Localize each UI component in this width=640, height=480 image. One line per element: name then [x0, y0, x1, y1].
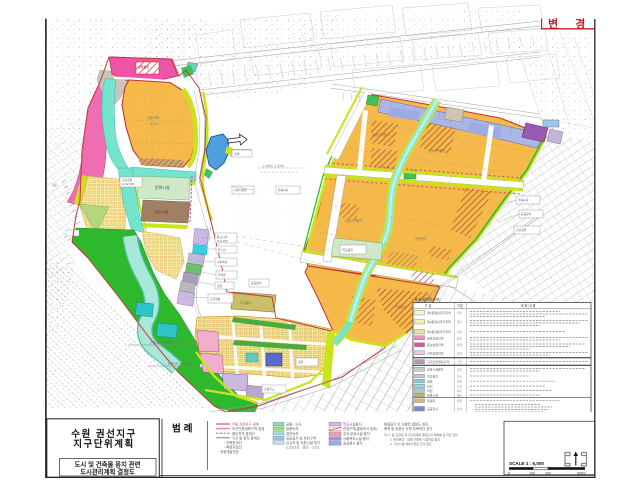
svg-text:주택용지: 주택용지 [415, 236, 427, 241]
svg-text:기호: 기호 [457, 303, 463, 308]
svg-text:주) 1. 본 도면은 지구단위계획 결정도의 범례를 표기: 주) 1. 본 도면은 지구단위계획 결정도의 범례를 표기한 것임 [384, 432, 458, 437]
svg-text:완충녹지: 완충녹지 [278, 188, 289, 192]
svg-text:구 분: 구 분 [424, 303, 431, 308]
svg-text:주요 공공시설 용지: 주요 공공시설 용지 [343, 431, 370, 436]
svg-text:200: 200 [545, 472, 551, 476]
svg-text:일반상업지역: 일반상업지역 [427, 335, 444, 340]
svg-text:SCALE 1 : 6,000: SCALE 1 : 6,000 [509, 461, 544, 466]
svg-text:A=12,000: A=12,000 [122, 182, 134, 186]
svg-text:전용: 전용 [457, 330, 462, 334]
svg-text:업무시설: 업무시설 [155, 209, 168, 214]
svg-text:도시관리계획 결정도: 도시관리계획 결정도 [80, 467, 135, 476]
svg-text:상업용지: 상업용지 [138, 64, 149, 69]
svg-text:축척 및 방위는 도면 우측하단 표기: 축척 및 방위는 도면 우측하단 표기 [384, 426, 432, 431]
svg-text:초등학교: 초등학교 [264, 387, 275, 391]
svg-text:완충녹지: 완충녹지 [286, 426, 298, 431]
svg-text:◦ 벽면지정선: ◦ 벽면지정선 [224, 445, 242, 450]
svg-text:경계: 경계 [234, 152, 240, 156]
svg-text:상업: 상업 [457, 336, 462, 340]
svg-text:공공: 공공 [457, 368, 462, 372]
svg-text:가구 및 획지 경계선: 가구 및 획지 경계선 [232, 435, 260, 440]
svg-text:도로(대로 · 중로 · 소로): 도로(대로 · 중로 · 소로) [286, 445, 319, 450]
svg-text:철도: 철도 [52, 183, 58, 187]
svg-text:용도지역 경계선: 용도지역 경계선 [232, 431, 255, 436]
svg-text:학교용지: 학교용지 [240, 300, 251, 305]
svg-text:문화시설: 문화시설 [155, 184, 170, 190]
svg-text:변경구역(결정조서 참조): 변경구역(결정조서 참조) [343, 426, 377, 431]
svg-text:전용: 전용 [457, 311, 462, 315]
svg-text:수원 권선지구 경계: 수원 권선지구 경계 [232, 422, 259, 427]
svg-text:2. 획지분할ㆍ합병 기준은 시행지침 참조: 2. 획지분할ㆍ합병 기준은 시행지침 참조 [390, 437, 440, 442]
svg-text:학교용지: 학교용지 [342, 247, 353, 252]
svg-text:사회복지: 사회복지 [217, 260, 228, 264]
svg-text:제1종전용주거지역: 제1종전용주거지역 [427, 329, 451, 334]
svg-text:공원: 공원 [217, 284, 223, 288]
svg-text:하천: 하천 [457, 389, 462, 393]
svg-text:제2종일반주거지역: 제2종일반주거지역 [427, 319, 451, 324]
svg-text:도시계획도로 접속부: 도시계획도로 접속부 [262, 164, 285, 168]
svg-text:공동주택용지: 공동주택용지 [428, 148, 446, 153]
svg-text:구역: 구역 [457, 360, 462, 364]
svg-text:범례: 범례 [172, 423, 195, 435]
svg-text:유치원: 유치원 [218, 273, 226, 277]
svg-text:500m: 500m [577, 472, 586, 476]
svg-text:공원 · 녹지: 공원 · 녹지 [286, 422, 302, 427]
svg-text:도시 및 건축물 용지 관련: 도시 및 건축물 용지 관련 [75, 460, 141, 469]
svg-text:범례표기 외 사항은 결정도 참조: 범례표기 외 사항은 결정도 참조 [384, 422, 428, 427]
svg-text:지구단위계획: 지구단위계획 [73, 438, 134, 450]
svg-text:상업: 상업 [457, 351, 462, 355]
svg-text:하천: 하천 [427, 388, 433, 393]
svg-text:근린생활: 근린생활 [210, 297, 221, 301]
svg-text:3. 기반시설 세부사항은 조서 참조: 3. 기반시설 세부사항은 조서 참조 [390, 441, 432, 446]
svg-text:제1종일반주거지역: 제1종일반주거지역 [427, 310, 451, 315]
svg-text:일반: 일반 [457, 320, 462, 324]
svg-text:경관녹지: 경관녹지 [286, 431, 298, 436]
svg-text:공공청사 용지: 공공청사 용지 [343, 441, 363, 446]
svg-text:공동주택용지: 공동주택용지 [345, 218, 363, 223]
svg-text:0: 0 [508, 472, 510, 476]
svg-text:근린공원: 근린공원 [516, 228, 527, 232]
svg-text:학교: 학교 [457, 374, 462, 378]
svg-text:사회복지시설 용지: 사회복지시설 용지 [343, 436, 369, 441]
svg-text:중심상업지역: 중심상업지역 [427, 342, 444, 347]
svg-text:공원: 공원 [427, 378, 433, 383]
svg-text:공공공지: 공공공지 [521, 212, 532, 216]
svg-text:공공공지 및 하천구역: 공공공지 및 하천구역 [286, 435, 316, 440]
svg-text:공공시설용지: 공공시설용지 [427, 367, 444, 372]
svg-text:녹지: 녹지 [457, 384, 462, 388]
svg-text:유수지: 유수지 [218, 248, 226, 252]
svg-text:근린상업지역: 근린상업지역 [427, 350, 444, 355]
svg-text:공동주택용지: 공동주택용지 [372, 132, 390, 137]
svg-text:완충녹지: 완충녹지 [518, 198, 529, 202]
svg-text:공원: 공원 [457, 379, 462, 383]
svg-text:학교용지: 학교용지 [427, 373, 438, 378]
svg-text:· 공동개발권장: · 공동개발권장 [218, 449, 239, 454]
svg-text:유수지 및 저류시설 부지: 유수지 및 저류시설 부지 [286, 440, 320, 445]
svg-text:지구단위계획구역 경계: 지구단위계획구역 경계 [232, 426, 264, 431]
svg-text:주택용지: 주택용지 [395, 304, 406, 309]
svg-text:공원: 공원 [298, 360, 304, 364]
svg-text:계 획 내 용: 계 획 내 용 [520, 303, 535, 308]
svg-text:녹지: 녹지 [427, 383, 433, 388]
svg-text:◦ 건축한계선: ◦ 건축한계선 [224, 440, 242, 445]
svg-text:공공청사: 공공청사 [427, 406, 438, 411]
svg-text:(아파트): (아파트) [149, 122, 159, 126]
svg-text:체육시설: 체육시설 [427, 392, 438, 397]
svg-text:지구단위계획구역: 지구단위계획구역 [427, 359, 449, 364]
svg-text:100: 100 [529, 472, 535, 476]
svg-text:유원지: 유원지 [427, 398, 436, 403]
svg-text:공동주택: 공동주택 [147, 115, 159, 120]
svg-text:A=2,400: A=2,400 [217, 239, 228, 243]
svg-text:청사: 청사 [457, 407, 462, 411]
svg-text:유원: 유원 [457, 399, 462, 403]
svg-text:학교시설용지: 학교시설용지 [343, 422, 362, 427]
svg-text:■ 범례(계획내용): ■ 범례(계획내용) [415, 297, 440, 302]
svg-text:공공청사: 공공청사 [251, 281, 262, 285]
svg-text:상업: 상업 [457, 343, 462, 347]
svg-text:체육: 체육 [457, 393, 462, 397]
